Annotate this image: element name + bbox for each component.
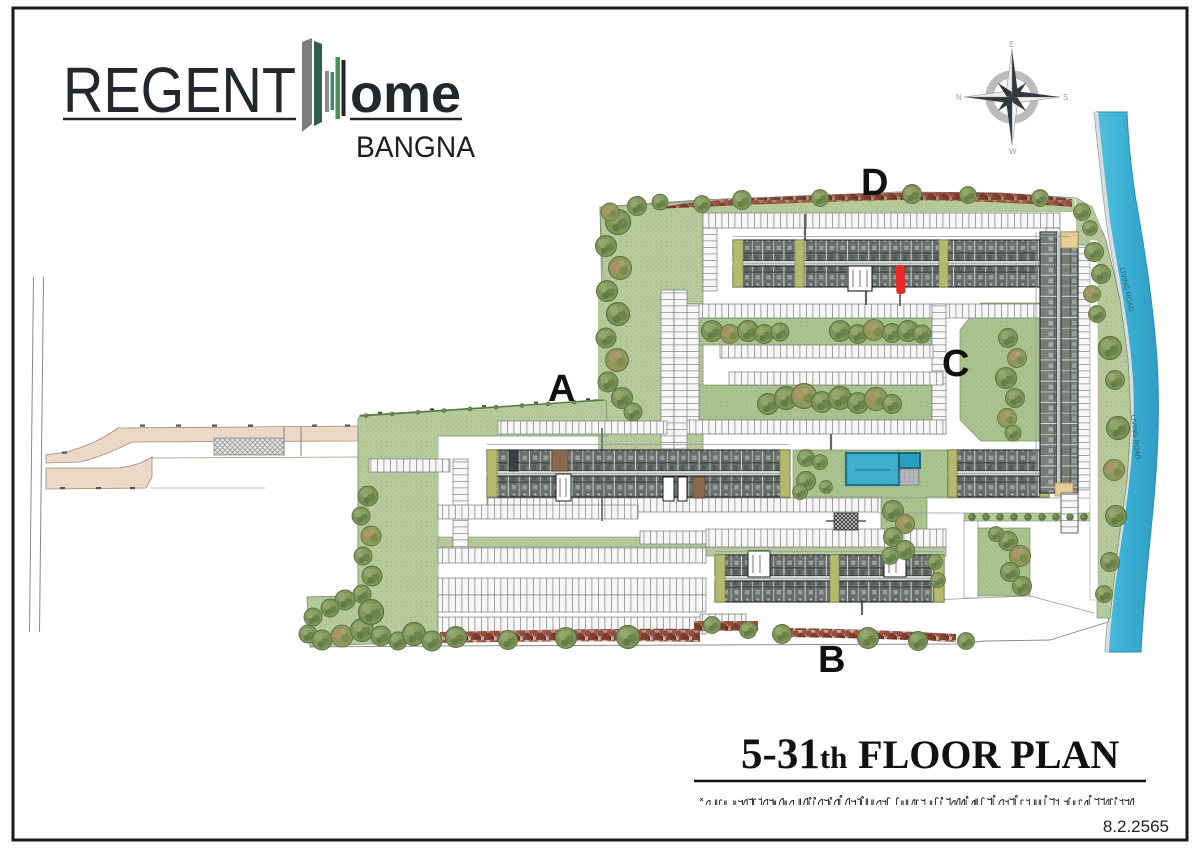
svg-text:D: D: [861, 162, 888, 204]
svg-text:N: N: [956, 93, 962, 102]
svg-text:A: A: [548, 368, 575, 410]
svg-text:W: W: [1009, 147, 1017, 156]
svg-text:REGENT: REGENT: [63, 54, 296, 126]
svg-text:BANGNA: BANGNA: [356, 131, 475, 164]
svg-text:S: S: [1063, 93, 1068, 102]
svg-text:5-31th FLOOR PLAN: 5-31th FLOOR PLAN: [741, 731, 1119, 778]
svg-text:E: E: [1009, 40, 1014, 49]
svg-text:8.2.2565: 8.2.2565: [1103, 817, 1169, 836]
svg-text:B: B: [818, 639, 845, 681]
svg-text:ome: ome: [350, 64, 461, 124]
svg-text:C: C: [942, 343, 969, 385]
